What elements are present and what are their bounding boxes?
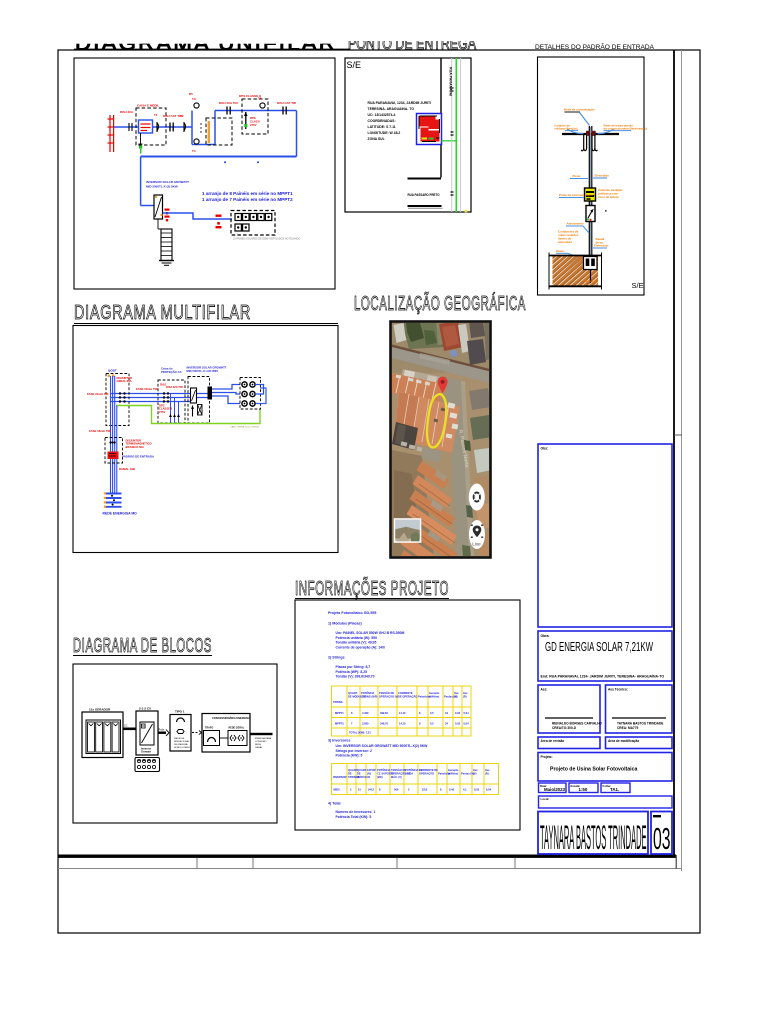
svg-text:REDE GERAL: REDE GERAL [229,727,245,730]
svg-text:BIDIRECIONAL: BIDIRECIONAL [174,740,190,743]
svg-text:LOCALIZAÇÃO GEOGRÁFICA: LOCALIZAÇÃO GEOGRÁFICA [354,291,526,315]
svg-text:UC: 13/1432574-4: UC: 13/1432574-4 [368,113,396,117]
svg-text:TOTAL (KW): 7,21: TOTAL (KW): 7,21 [349,731,371,735]
svg-text:R5: R5 [189,92,193,96]
svg-text:Haste 2,4m: Haste 2,4m [584,279,598,283]
svg-text:CREA: MA779: CREA: MA779 [617,726,638,730]
svg-text:Poste de concreto duplo T: Poste de concreto duplo T [559,193,596,197]
svg-text:LATITUDE: S 7.11: LATITUDE: S 7.11 [368,125,396,129]
svg-text:0,02: 0,02 [455,711,461,715]
svg-text:Projeto de Usina Solar Fotovol: Projeto de Usina Solar Fotovoltaica [550,767,637,773]
svg-text:T3: T3 [192,97,196,101]
svg-text:RAMAL 16B: RAMAL 16B [119,467,135,471]
svg-text:Live: Live [472,542,481,547]
svg-text:1 arranjo de 7 Painéis em séri: 1 arranjo de 7 Painéis em série no MPPT2 [202,197,293,202]
svg-text:(V): (V) [454,694,458,698]
svg-text:Número de Inversores: 1: Número de Inversores: 1 [336,810,376,814]
svg-text:da concessionária (fase/neutro: da concessionária (fase/neutro) [604,127,648,131]
svg-text:REDE: REDE [255,744,262,746]
svg-text:S/E: S/E [347,60,362,70]
svg-text:REINALDO BORGES CARVALHO: REINALDO BORGES CARVALHO [552,722,603,726]
svg-text:FASE 10mm TRI: FASE 10mm TRI [136,387,158,391]
svg-text:INVERSOR SOLAR GROWATT: INVERSOR SOLAR GROWATT [146,180,189,184]
svg-text:0,40: 0,40 [449,788,455,792]
svg-text:Poste: Poste [573,174,581,178]
svg-text:Eletroduto: Eletroduto [595,174,610,178]
svg-text:4.400: 4.400 [362,711,369,715]
svg-text:GERAL: GERAL [255,746,263,749]
svg-text:DE ENERGIA: DE ENERGIA [174,743,188,746]
svg-text:T4: T4 [192,149,196,153]
svg-text:RUA PARANAVAI: RUA PARANAVAI [449,67,453,96]
svg-text:0,5: 0,5 [430,722,434,726]
svg-text:0,02: 0,02 [455,722,461,726]
svg-text:RUA PASSARO PRETO: RUA PASSARO PRETO [408,192,440,197]
svg-text:INFORMAÇÕES PROJETO: INFORMAÇÕES PROJETO [295,576,449,600]
svg-text:CABO TERRA 10mm VERDE: CABO TERRA 10mm VERDE [230,426,259,429]
svg-text:Projeto Fotovoltaico GD-555: Projeto Fotovoltaico GD-555 [328,611,376,615]
svg-text:Ass Técnico:: Ass Técnico: [608,688,628,692]
svg-text:ZONA SUL: ZONA SUL [368,137,385,141]
svg-text:Ger.: Ger. [454,691,459,695]
svg-text:14,10: 14,10 [399,711,406,715]
svg-text:0,02: 0,02 [474,788,480,792]
svg-text:Maio/2023: Maio/2023 [544,787,566,792]
svg-text:TAYNARA BASTOS TRINDADE: TAYNARA BASTOS TRINDADE [540,819,647,857]
svg-text:2-1-2 CV: 2-1-2 CV [139,707,151,711]
svg-text:144,2: 144,2 [368,788,375,792]
svg-text:DISJ 40A: DISJ 40A [120,110,134,114]
svg-text:4,1: 4,1 [463,788,467,792]
svg-text:PROTEÇÃO CA: PROTEÇÃO CA [161,369,182,374]
svg-text:QUANT.: QUANT. [357,768,367,772]
svg-text:(kW): (kW) [377,775,383,779]
svg-text:275V: 275V [159,410,165,414]
svg-text:Geração: Geração [429,691,440,695]
svg-text:TA1.: TA1. [610,787,619,792]
svg-text:STRING (WP): STRING (WP) [361,694,378,698]
svg-text:STRING: STRING [333,700,343,704]
svg-text:MPPT2: MPPT2 [335,722,344,726]
svg-text:15 PAINEIS SOLARES DE 550W INS: 15 PAINEIS SOLARES DE 550W INSTALADOS NO… [233,238,300,241]
svg-text:CAIXA E MEDIL: CAIXA E MEDIL [137,104,159,108]
svg-text:Strings por inversor: 2: Strings por inversor: 2 [336,749,372,753]
svg-text:12x GERADOR: 12x GERADOR [89,708,111,712]
svg-text:(kWh/m): (kWh/m) [448,771,458,775]
svg-text:349,70: 349,70 [380,722,388,726]
svg-text:CONSUMO: CONSUMO [255,741,267,743]
svg-text:1 arranjo de 8 Painéis em séri: 1 arranjo de 8 Painéis em série no MPPT1 [202,191,293,196]
svg-text:FASE 10mm TRI: FASE 10mm TRI [87,392,109,396]
svg-text:DIAGRAMA DE BLOCOS: DIAGRAMA DE BLOCOS [73,635,212,657]
svg-text:03: 03 [653,821,671,856]
svg-text:TERESINA- ARAGUAINA- TO: TERESINA- ARAGUAINA- TO [368,107,415,111]
svg-text:DISJ CAT TRI: DISJ CAT TRI [277,101,296,105]
svg-text:Rede: Rede [159,729,165,732]
svg-text:22,8: 22,8 [422,788,428,792]
svg-text:Ger.: Ger. [463,691,468,695]
svg-text:275V: 275V [250,123,257,127]
svg-text:3) Inversores: 3) Inversores [328,739,350,743]
svg-text:DISJ 40A TRI: DISJ 40A TRI [219,101,238,105]
svg-text:(R): (R) [485,771,489,775]
svg-text:BIFASICO 63A: BIFASICO 63A [126,445,144,449]
svg-text:CORRENTE DE: CORRENTE DE [419,768,438,772]
svg-text:COORDENADAS:: COORDENADAS: [368,119,396,123]
svg-text:MID5: MID5 [334,788,341,792]
svg-text:2) Strings: 2) Strings [328,656,345,660]
svg-text:Um: INVERSOR SOLAR GROWATT MID: Um: INVERSOR SOLAR GROWATT MID 5000TL-X(… [336,744,429,748]
svg-text:3.850: 3.850 [362,722,369,726]
svg-text:399,60: 399,60 [380,711,388,715]
svg-text:T2: T2 [180,114,184,118]
svg-text:Potência (KW): 5: Potência (KW): 5 [336,754,363,758]
svg-text:ENERGIA PARA: ENERGIA PARA [255,737,272,740]
svg-text:500: 500 [394,788,399,792]
svg-text:DE: DE [357,771,361,775]
svg-text:Geração: Geração [448,768,459,772]
svg-text:T5: T5 [258,97,262,101]
svg-text:Tensão (V): 399,6/349,70: Tensão (V): 399,6/349,70 [336,675,375,679]
svg-text:S/E: S/E [632,281,644,290]
svg-text:TRAFO: TRAFO [205,727,213,730]
svg-text:MPPT1: MPPT1 [335,711,344,715]
svg-text:Placas por String: 8,7: Placas por String: 8,7 [336,665,371,669]
svg-text:Um: PAINEL SOLAR 550W GHJ B RS: Um: PAINEL SOLAR 550W GHJ B RS-550M [336,631,405,635]
svg-text:Aterramento: Aterramento [567,222,584,226]
svg-text:14,10: 14,10 [399,722,406,726]
svg-text:DE: DE [348,771,352,775]
svg-text:CREA/TO:300-D: CREA/TO:300-D [552,726,577,730]
svg-text:MEDIDOR: MEDIDOR [174,738,185,740]
svg-text:CC: CC [124,725,128,728]
svg-text:REDE ENERGISA MD: REDE ENERGISA MD [103,512,138,516]
svg-text:DETALHES DO PADRÃO DE ENTRADA: DETALHES DO PADRÃO DE ENTRADA [535,42,654,51]
svg-text:0,04: 0,04 [464,711,470,715]
svg-text:Potência (WP): 8,25: Potência (WP): 8,25 [336,670,368,674]
svg-text:0,04: 0,04 [464,722,470,726]
svg-text:4) Total: 4) Total [328,802,341,806]
svg-text:Rede de comunicação: Rede de comunicação [564,108,595,112]
svg-text:1) Módulos (Placas): 1) Módulos (Placas) [328,622,363,626]
svg-text:(V): (V) [473,771,477,775]
svg-text:1:50: 1:50 [579,787,588,792]
svg-text:TAYNARA BASTOS TRINDADE: TAYNARA BASTOS TRINDADE [617,722,663,726]
svg-text:PADRÃO DE ENTRADA: PADRÃO DE ENTRADA [122,454,155,459]
svg-text:TIPO 1: TIPO 1 [175,710,185,714]
svg-text:0,5: 0,5 [430,711,434,715]
svg-text:Growatt: Growatt [141,750,151,754]
svg-text:Projeto:: Projeto: [541,755,553,759]
svg-text:de en.: de en. [596,241,605,245]
svg-text:Obs:: Obs: [541,447,549,451]
svg-text:Potência unitária (W): 550: Potência unitária (W): 550 [336,636,378,640]
svg-text:Ger.: Ger. [485,768,490,772]
svg-text:MID 5000TL-X (2) 5KW: MID 5000TL-X (2) 5KW [146,185,178,189]
svg-text:GERAL 63A: GERAL 63A [117,379,132,383]
svg-text:Área de modificação: Área de modificação [608,738,639,743]
svg-text:0,04: 0,04 [486,788,492,792]
svg-text:FASE 16mm TRI: FASE 16mm TRI [89,429,111,433]
svg-text:HOMOLOGADO: HOMOLOGADO [174,746,190,749]
svg-text:Corrente de operação (A): 14/0: Corrente de operação (A): 14/0 [336,645,385,649]
svg-text:QGBT: QGBT [108,369,117,373]
svg-text:Ger.: Ger. [473,768,478,772]
svg-text:Obra:: Obra: [541,634,550,638]
svg-text:DISJ 32A TRI: DISJ 32A TRI [166,385,183,389]
svg-text:QUANT.: QUANT. [348,691,358,695]
svg-text:T1: T1 [154,113,158,117]
svg-text:MID 5000TL-X LCD WIFI: MID 5000TL-X LCD WIFI [187,369,219,373]
svg-text:Potência Total (KW): 5: Potência Total (KW): 5 [336,815,372,819]
svg-text:FATOR: FATOR [367,768,376,772]
svg-text:Área de revisão: Área de revisão [541,738,565,743]
svg-text:Ass:: Ass: [541,688,548,692]
svg-text:visor de leitura: visor de leitura [598,195,619,199]
svg-text:(R): (R) [463,694,467,698]
svg-text:(kWh/m): (kWh/m) [429,694,439,698]
svg-text:Tensão unitária (V): 49,95: Tensão unitária (V): 49,95 [336,641,377,645]
svg-text:(%): (%) [367,771,371,775]
svg-text:End: RUA PARANAVAI, 1234- JA: End: RUA PARANAVAI, 1234- JARDIM JURITI,… [541,674,665,679]
svg-text:Local:: Local: [541,797,550,801]
svg-text:Haste: Haste [556,249,564,253]
svg-text:INVERSOR: INVERSOR [333,775,347,779]
svg-text:LONGITUDE: W 48.2: LONGITUDE: W 48.2 [368,131,401,135]
svg-text:GD ENERGIA SOLAR 7,21KW: GD ENERGIA SOLAR 7,21KW [545,639,653,654]
svg-text:eletroduto: eletroduto [558,240,572,244]
svg-text:DIAGRAMA MULTIFILAR: DIAGRAMA MULTIFILAR [74,302,251,324]
svg-text:roldana (fixação): roldana (fixação) [555,127,578,131]
svg-text:CORRENTE: CORRENTE [398,691,413,695]
svg-text:RUA PARANAVAI, 1234, JARDIM JU: RUA PARANAVAI, 1234, JARDIM JURITI [368,101,432,105]
